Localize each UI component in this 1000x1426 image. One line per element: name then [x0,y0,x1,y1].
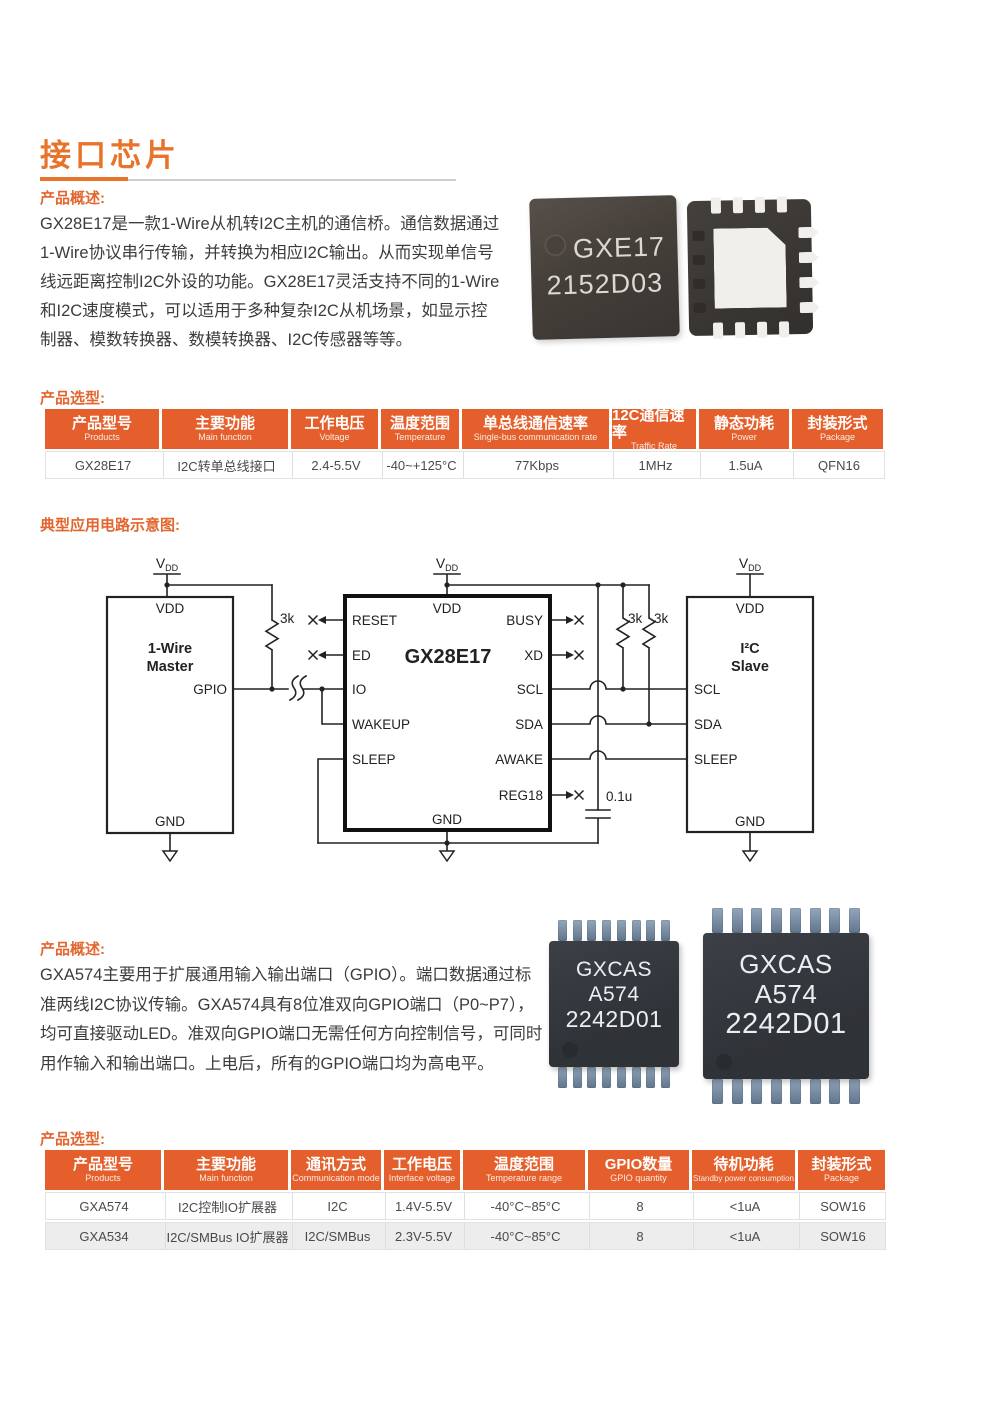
resistor-value: 3k [628,611,643,626]
stub-nc-right [550,620,566,795]
cell-standby-power: <1uA [693,1193,796,1219]
chip-marking-line: 2152D03 [531,267,679,302]
vdd-supply-slave [737,574,763,597]
lead [732,1079,743,1104]
lead [587,1067,596,1088]
pin-awake: AWAKE [495,752,543,767]
cell-function: I2C控制IO扩展器 [165,1193,289,1219]
cell-package: SOW16 [799,1193,886,1219]
pin-sleep: SLEEP [352,752,396,767]
lead [573,920,582,941]
datasheet-page: 接口芯片 产品概述: GX28E17是一款1-Wire从机转I2C主机的通信桥。… [0,0,1000,1426]
col-package: 封装形式Package [792,409,883,449]
lead [661,920,670,941]
pin1-marker-circle [562,1042,578,1058]
lead [646,920,655,941]
pin-io: IO [352,682,366,697]
chip-photo-qfn16-bottom-view [687,199,813,336]
cell-voltage: 2.4-5.5V [292,452,379,478]
col-standby-power: 待机功耗Standby power consumption [692,1150,795,1190]
qfn-pad-right [799,277,819,288]
lead [790,1079,801,1104]
cell-voltage: 2.3V-5.5V [385,1223,461,1249]
pin-sleep: SLEEP [694,752,738,767]
ground-stems [170,830,750,851]
pin-vdd: VDD [736,601,765,616]
table-header-row: 产品型号Products 主要功能Main function 工作电压Volta… [45,409,885,449]
lead [712,1079,723,1104]
paragraph-line: GX28E17是一款1-Wire从机转I2C主机的通信桥。通信数据通过 [40,210,520,239]
block-name: I²C [740,641,760,657]
lead [617,920,626,941]
pin-gpio: GPIO [193,682,227,697]
cell-communication: I2C/SMBus [292,1223,382,1249]
lead [712,908,723,933]
capacitor-value: 0.1u [606,789,632,804]
chip-photo-gxa574-large: GXCAS A574 2242D01 [703,908,869,1104]
pin-vdd: VDD [156,601,185,616]
qfn-pad-top [733,197,743,213]
cell-communication: I2C [292,1193,382,1219]
col-interface-voltage: 工作电压Interface voltage [384,1150,460,1190]
wire-awake-sleep [550,751,687,759]
paragraph-line: 1-Wire协议串行传输，并转换为相应I2C输出。从而实现单信号 [40,239,520,268]
lead [661,1067,670,1088]
block-onewire-master [107,597,233,833]
chip-marking-line: GXE17 [530,231,678,266]
lead [632,1067,641,1088]
cell-product: GXA574 [46,1193,162,1219]
page-title: 接口芯片 [40,130,180,175]
lead [849,908,860,933]
circuit-label: 典型应用电路示意图: [40,514,180,535]
col-communication-mode: 通讯方式Communication mode [291,1150,381,1190]
vdd-label: VDD [739,555,762,573]
table-header-row: 产品型号Products 主要功能Main function 通讯方式Commu… [45,1150,886,1190]
title-underline-accent [40,177,128,181]
table-row: GXA574 I2C控制IO扩展器 I2C 1.4V-5.5V -40°C~85… [45,1192,886,1220]
stub-nc-left [326,620,345,655]
lead [810,1079,821,1104]
chip-marking-line: GXCAS [549,957,679,982]
chip-leads-bottom [703,1079,869,1104]
cell-function: I2C/SMBus IO扩展器 [165,1223,289,1249]
wire-sleep-loop [318,759,345,843]
cell-package: SOW16 [799,1223,886,1249]
chip-marking-line: 2242D01 [703,1009,869,1039]
col-singlebus-rate: 单总线通信速率Single-bus communication rate [462,409,609,449]
cell-function: I2C转单总线接口 [163,452,289,478]
lead [771,908,782,933]
qfn-pad-top [755,197,765,213]
qfn-pad-right [798,227,818,238]
table-row: GX28E17 I2C转单总线接口 2.4-5.5V -40~+125°C 77… [45,451,885,479]
paragraph-line: 和I2C速度模式，可以适用于多种复杂I2C从机场景，如显示控 [40,297,520,326]
block-name: 1-Wire [148,641,192,657]
wire-scl [550,681,687,689]
qfn-pad-bottom [779,321,789,337]
pin-scl: SCL [517,682,544,697]
qfn-pad-left [693,279,705,289]
qfn-thermal-pad [713,227,786,308]
overview-paragraph-1: GX28E17是一款1-Wire从机转I2C主机的通信桥。通信数据通过 1-Wi… [40,210,520,355]
lead [829,908,840,933]
cell-standby-power: <1uA [693,1223,796,1249]
cable-break-symbol [290,676,298,700]
resistor-3k-sda [643,585,655,724]
paragraph-line: 准两线I2C协议传输。GXA574具有8位准双向GPIO端口（P0~P7）， [40,991,540,1021]
product-selection-table-1: 产品型号Products 主要功能Main function 工作电压Volta… [45,409,885,479]
product-selection-table-2: 产品型号Products 主要功能Main function 通讯方式Commu… [45,1150,886,1250]
col-package: 封装形式Package [798,1150,885,1190]
block-i2c-slave [687,597,813,832]
lead [587,920,596,941]
lead [771,1079,782,1104]
chip-leads-bottom [549,1067,679,1088]
application-circuit-diagram: VDD VDD VDD VDD 1-Wire Master GPIO GND V… [55,545,865,880]
qfn-pad-bottom [713,322,723,338]
qfn-pad-right [799,252,819,263]
col-main-function: 主要功能Main function [162,409,288,449]
pin-ed: ED [352,648,371,663]
overview-label-1: 产品概述: [40,187,105,208]
paragraph-line: 均可直接驱动LED。准双向GPIO端口无需任何方向控制信号，可同时 [40,1020,540,1050]
chip-body: GXCAS A574 2242D01 [549,941,679,1067]
cell-gpio-quantity: 8 [589,1193,690,1219]
chip-photo-gx28e17-front: GXE17 2152D03 [529,195,680,340]
chip-marking-line: A574 [549,982,679,1007]
pin-gnd: GND [735,814,765,829]
title-underline-rule [128,179,456,181]
chip-leads-top [703,908,869,933]
qfn-pad-top [711,197,721,213]
table-row: GXA534 I2C/SMBus IO扩展器 I2C/SMBus 2.3V-5.… [45,1222,886,1250]
cable-break-symbol [298,676,306,700]
lead [790,908,801,933]
selection-label-2: 产品选型: [40,1128,105,1149]
qfn-pad-top [777,196,787,212]
cell-singlebus-rate: 77Kbps [463,452,610,478]
paragraph-line: GXA574主要用于扩展通用输入输出端口（GPIO）。端口数据通过标 [40,961,540,991]
lead [829,1079,840,1104]
pin-vdd: VDD [433,601,462,616]
qfn-pad-left [692,231,704,241]
paragraph-line: 用作输入和输出端口。上电后，所有的GPIO端口均为高电平。 [40,1050,540,1080]
lead [558,920,567,941]
col-products: 产品型号Products [45,1150,161,1190]
pin-scl: SCL [694,682,721,697]
cell-temperature: -40~+125°C [382,452,460,478]
qfn-pad-left [693,255,705,265]
col-power: 静态功耗Power [699,409,789,449]
lead [558,1067,567,1088]
col-voltage: 工作电压Voltage [291,409,378,449]
lead [810,908,821,933]
lead [751,908,762,933]
col-temperature: 温度范围Temperature [381,409,459,449]
pin-gnd: GND [155,814,185,829]
vdd-label: VDD [156,555,179,573]
qfn-pad-right [800,302,820,313]
pin-gnd: GND [432,812,462,827]
lead [573,1067,582,1088]
overview-label-2: 产品概述: [40,938,105,959]
col-gpio-quantity: GPIO数量GPIO quantity [588,1150,689,1190]
chip-marking-line: A574 [703,979,869,1009]
ground-symbols [163,851,757,861]
cell-product: GXA534 [46,1223,162,1249]
lead [646,1067,655,1088]
selection-label-1: 产品选型: [40,387,105,408]
resistor-value: 3k [280,611,295,626]
lead [732,908,743,933]
chip-marking-line: 2242D01 [549,1007,679,1032]
paragraph-line: 制器、模数转换器、数模转换器、I2C传感器等等。 [40,326,520,355]
col-traffic-rate: 12C通信速率Traffic Rate [612,409,696,449]
chip-name: GX28E17 [405,646,492,668]
wire-wakeup [322,689,345,724]
cell-temperature: -40°C~85°C [464,1193,586,1219]
lead [617,1067,626,1088]
chip-body: GXCAS A574 2242D01 [703,933,869,1079]
wire-sda [550,716,687,724]
qfn-pad-bottom [757,322,767,338]
resistor-value: 3k [654,611,669,626]
lead [849,1079,860,1104]
pin1-marker-circle [716,1054,732,1070]
pin-busy: BUSY [506,613,543,628]
col-products: 产品型号Products [45,409,159,449]
cell-product: GX28E17 [46,452,160,478]
cell-temperature: -40°C~85°C [464,1223,586,1249]
lead [602,1067,611,1088]
cell-package: QFN16 [793,452,884,478]
pin-reset: RESET [352,613,397,628]
chip-marking-line: GXCAS [703,949,869,979]
lead [632,920,641,941]
capacitor-symbol [586,810,610,843]
chip-photo-gxa574-small: GXCAS A574 2242D01 [549,920,679,1088]
resistor-3k-onewire [266,585,278,689]
qfn-pad-left [694,303,706,313]
pin-sda: SDA [515,717,543,732]
resistor-3k-scl [617,585,629,689]
pin-reg18: REG18 [499,788,543,803]
col-main-function: 主要功能Main function [164,1150,288,1190]
chip-leads-top [549,920,679,941]
overview-paragraph-2: GXA574主要用于扩展通用输入输出端口（GPIO）。端口数据通过标 准两线I2… [40,961,540,1079]
cell-traffic-rate: 1MHz [613,452,697,478]
paragraph-line: 线远距离控制I2C外设的功能。GX28E17灵活支持不同的1-Wire [40,268,520,297]
vdd-label: VDD [436,555,459,573]
col-temperature-range: 温度范围Temperature range [463,1150,585,1190]
lead [602,920,611,941]
pin-xd: XD [524,648,543,663]
pin-sda: SDA [694,717,722,732]
cell-power: 1.5uA [700,452,790,478]
block-name: Slave [731,659,769,675]
cell-gpio-quantity: 8 [589,1223,690,1249]
lead [751,1079,762,1104]
block-name: Master [147,659,194,675]
pin-wakeup: WAKEUP [352,717,410,732]
qfn-pad-bottom [735,322,745,338]
cell-voltage: 1.4V-5.5V [385,1193,461,1219]
